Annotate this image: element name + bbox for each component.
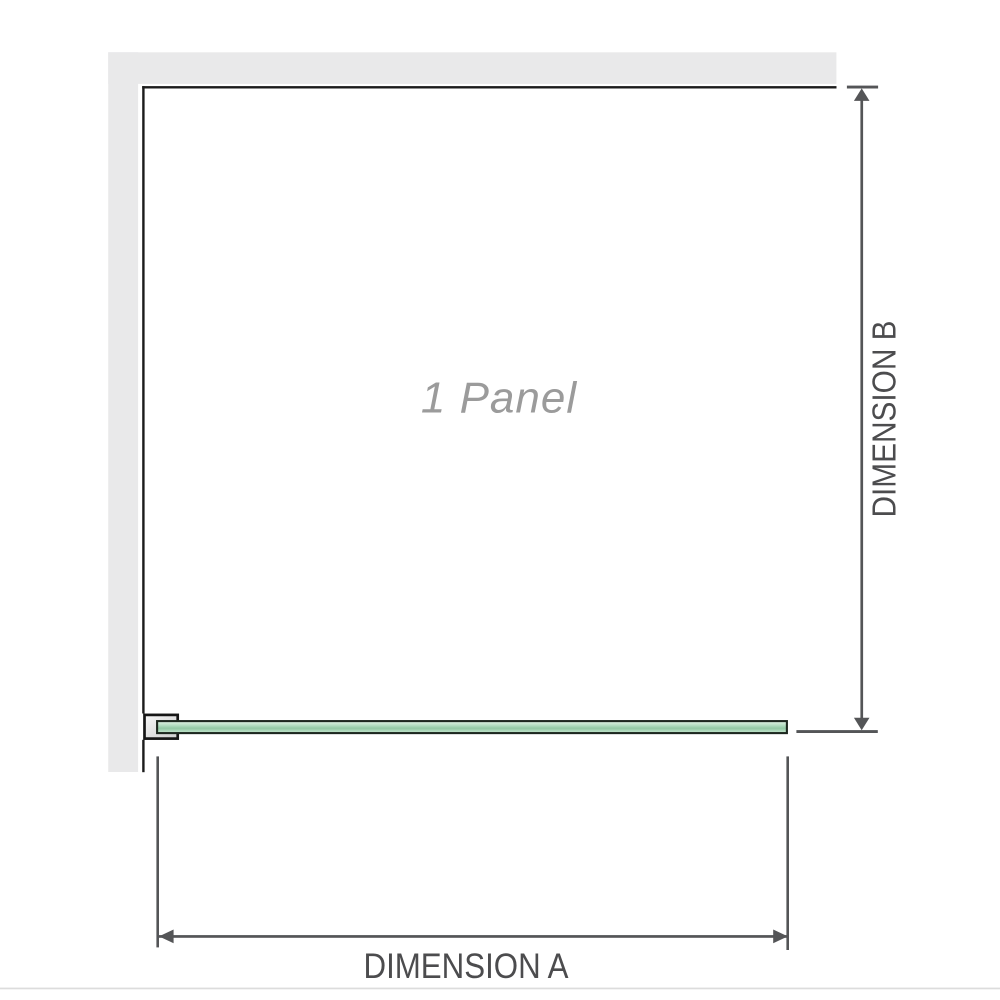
svg-text:1 Panel: 1 Panel — [421, 374, 577, 423]
svg-text:DIMENSION A: DIMENSION A — [364, 946, 569, 986]
svg-text:DIMENSION B: DIMENSION B — [866, 321, 903, 518]
